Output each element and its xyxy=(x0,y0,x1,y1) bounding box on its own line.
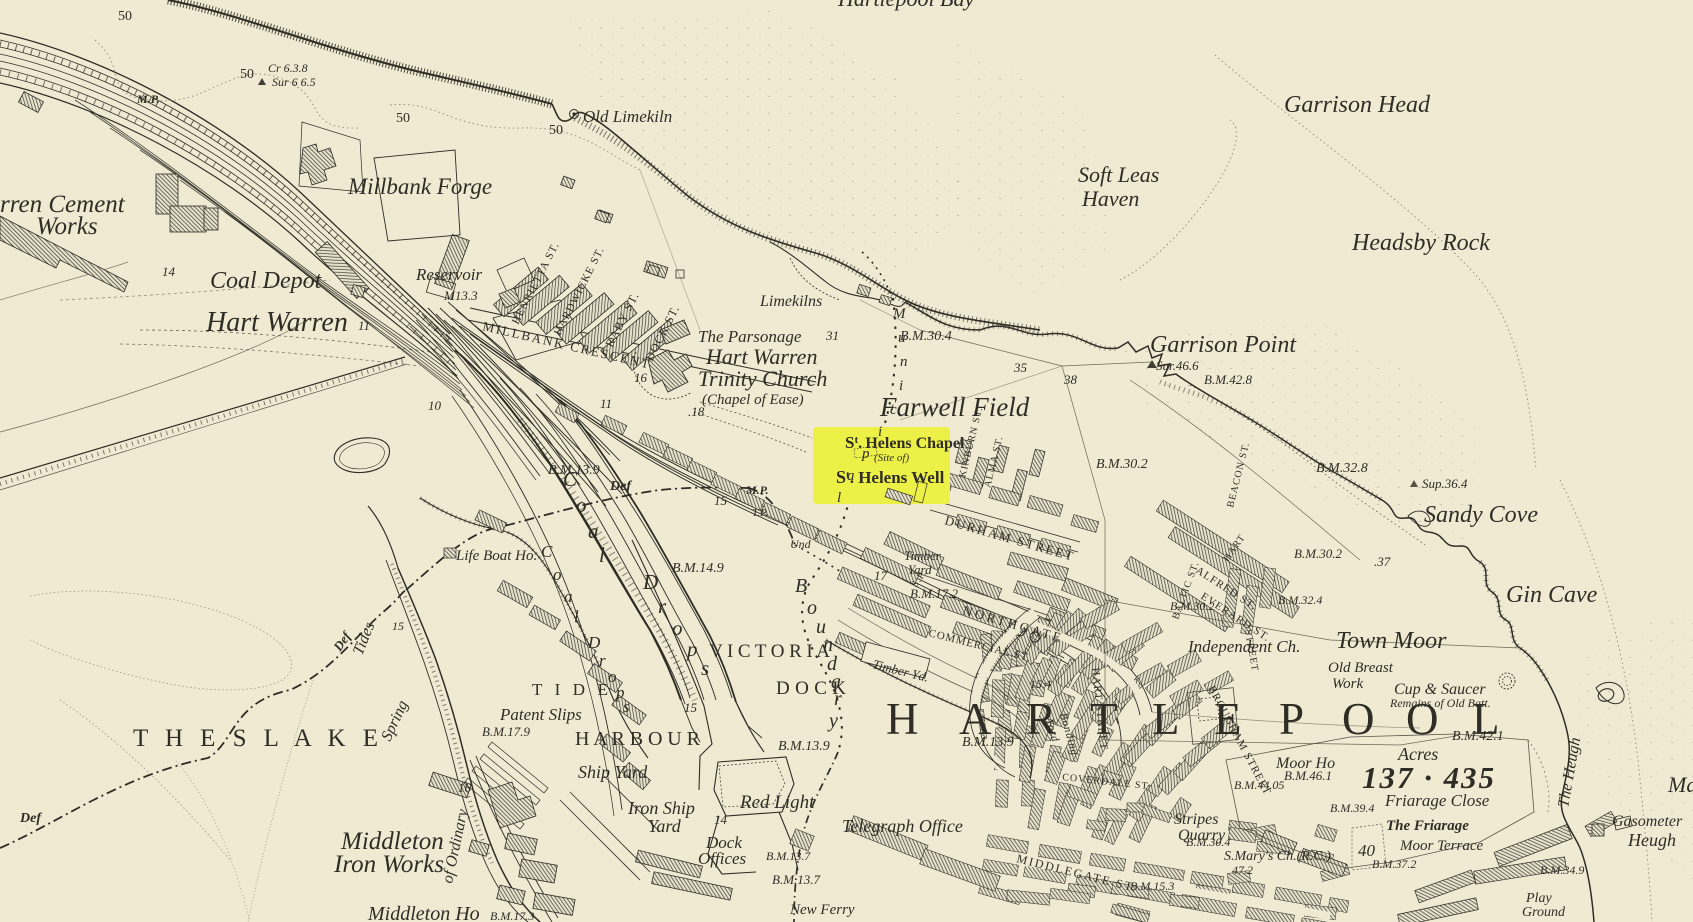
svg-text:Offices: Offices xyxy=(698,849,747,868)
svg-text:M: M xyxy=(892,306,907,322)
svg-text:10: 10 xyxy=(428,398,442,413)
svg-text:16: 16 xyxy=(458,780,472,795)
svg-text:15: 15 xyxy=(684,700,698,715)
svg-text:New Ferry: New Ferry xyxy=(789,902,855,918)
svg-text:Sur.46.6: Sur.46.6 xyxy=(1156,358,1199,373)
svg-text:38: 38 xyxy=(1063,372,1078,387)
svg-text:s: s xyxy=(623,697,630,716)
svg-text:B.M.46.1: B.M.46.1 xyxy=(1284,768,1332,783)
svg-text:Works: Works xyxy=(36,213,98,240)
svg-text:50: 50 xyxy=(240,67,254,82)
svg-text:p: p xyxy=(861,446,870,462)
svg-text:47.2: 47.2 xyxy=(1232,863,1253,877)
svg-text:B.M.13.7: B.M.13.7 xyxy=(772,872,821,887)
svg-text:50: 50 xyxy=(549,123,563,138)
svg-text:u: u xyxy=(898,330,906,346)
svg-text:Town Moor: Town Moor xyxy=(1336,628,1447,654)
svg-text:M13.3: M13.3 xyxy=(443,288,478,303)
svg-text:Soft Leas: Soft Leas xyxy=(1078,162,1159,187)
svg-text:Patent Slips: Patent Slips xyxy=(499,705,582,724)
svg-text:B.M.42.1: B.M.42.1 xyxy=(1452,729,1504,744)
svg-text:T H E S L A K E: T H E S L A K E xyxy=(133,725,378,752)
svg-text:Sandy Cove: Sandy Cove xyxy=(1424,502,1538,528)
svg-text:14: 14 xyxy=(162,264,176,279)
svg-text:i: i xyxy=(878,424,882,440)
svg-text:B.M.34.9: B.M.34.9 xyxy=(1540,863,1584,877)
svg-text:B.M.14.9: B.M.14.9 xyxy=(672,561,724,576)
svg-text:Yard: Yard xyxy=(648,816,682,836)
svg-text:Stripes: Stripes xyxy=(1174,811,1218,828)
svg-text:B.M.13.7: B.M.13.7 xyxy=(766,849,811,863)
svg-text:16: 16 xyxy=(634,370,648,385)
svg-text:O: O xyxy=(1406,694,1439,744)
svg-text:a: a xyxy=(564,587,573,606)
svg-text:Farwell Field: Farwell Field xyxy=(879,392,1030,422)
svg-text:p: p xyxy=(685,637,698,661)
svg-text:Iron Ship: Iron Ship xyxy=(627,798,695,818)
svg-text:B.M.37.2: B.M.37.2 xyxy=(1372,857,1416,871)
svg-text:Sur 6 6.5: Sur 6 6.5 xyxy=(272,75,316,89)
svg-text:B.M.42.8: B.M.42.8 xyxy=(1204,372,1253,387)
svg-text:B.M.32.8: B.M.32.8 xyxy=(1316,461,1368,476)
svg-text:Iron Works: Iron Works xyxy=(333,851,444,878)
svg-text:a: a xyxy=(847,468,855,484)
svg-text:P: P xyxy=(1279,694,1304,744)
svg-text:r: r xyxy=(834,688,842,710)
svg-text:(Chapel of Ease): (Chapel of Ease) xyxy=(702,392,804,408)
svg-text:B.M.32.4: B.M.32.4 xyxy=(1278,593,1322,607)
svg-text:y: y xyxy=(827,710,838,732)
svg-text:Garrison Head: Garrison Head xyxy=(1284,92,1431,118)
svg-text:Garrison Point: Garrison Point xyxy=(1150,332,1297,358)
svg-text:S.Mary's Ch.(R.C.): S.Mary's Ch.(R.C.) xyxy=(1224,849,1331,864)
svg-text:V I C T O R I A: V I C T O R I A xyxy=(709,641,830,662)
svg-text:Millbank Forge: Millbank Forge xyxy=(347,174,492,199)
svg-text:Trinity Church: Trinity Church xyxy=(698,366,827,391)
svg-text:s: s xyxy=(701,656,709,680)
svg-text:Def: Def xyxy=(609,479,632,494)
svg-text:15.4: 15.4 xyxy=(1030,677,1051,691)
svg-text:B.M.30.2: B.M.30.2 xyxy=(1294,546,1343,561)
svg-text:11: 11 xyxy=(600,396,612,411)
svg-text:n: n xyxy=(900,354,908,370)
svg-text:Limekilns: Limekilns xyxy=(759,293,822,310)
svg-text:15: 15 xyxy=(392,619,404,633)
svg-text:H A R B O U R: H A R B O U R xyxy=(575,728,701,750)
svg-text:Und: Und xyxy=(790,537,812,551)
svg-text:Haven: Haven xyxy=(1081,186,1139,211)
svg-text:Life Boat Ho.: Life Boat Ho. xyxy=(455,548,537,564)
svg-text:Moor Terrace: Moor Terrace xyxy=(1399,838,1484,854)
svg-text:B.M.39.4: B.M.39.4 xyxy=(1330,801,1374,815)
svg-text:B.M.30.4: B.M.30.4 xyxy=(900,329,952,344)
svg-text:Headsby Rock: Headsby Rock xyxy=(1351,230,1490,256)
svg-text:T.P.: T.P. xyxy=(752,507,768,519)
svg-text:31: 31 xyxy=(825,328,839,343)
svg-text:Gin Cave: Gin Cave xyxy=(1506,582,1598,608)
svg-text:17: 17 xyxy=(874,568,888,583)
svg-text:B.M.30.2: B.M.30.2 xyxy=(1096,457,1148,472)
svg-text:Def: Def xyxy=(19,811,42,826)
svg-text:Hart Warren: Hart Warren xyxy=(205,307,348,338)
svg-text:Hartlepool Bay: Hartlepool Bay xyxy=(837,0,974,11)
svg-text:35: 35 xyxy=(1013,360,1028,375)
svg-text:Timber: Timber xyxy=(904,548,942,563)
svg-text:D: D xyxy=(642,570,658,594)
svg-text:137 · 435: 137 · 435 xyxy=(1362,760,1494,795)
svg-text:M.P.: M.P. xyxy=(745,483,768,497)
svg-text:Ship Yard: Ship Yard xyxy=(578,762,648,782)
svg-text:Old Breast: Old Breast xyxy=(1328,660,1394,676)
svg-text:Old Limekiln: Old Limekiln xyxy=(583,107,672,126)
svg-text:Ma: Ma xyxy=(1667,772,1693,797)
svg-text:c: c xyxy=(890,402,897,418)
svg-text:a: a xyxy=(588,519,599,543)
svg-text:o: o xyxy=(553,565,562,584)
svg-text:C: C xyxy=(541,542,553,561)
svg-text:Ground: Ground xyxy=(1522,905,1566,920)
svg-text:D: D xyxy=(587,633,601,652)
svg-text:Reservoir: Reservoir xyxy=(415,265,482,284)
svg-text:i: i xyxy=(899,378,903,394)
svg-text:(Site of): (Site of) xyxy=(874,452,909,464)
svg-text:B.M.30.4: B.M.30.4 xyxy=(1186,835,1230,849)
svg-text:o: o xyxy=(576,493,587,517)
svg-text:Gasometer: Gasometer xyxy=(1612,813,1683,830)
svg-text:50: 50 xyxy=(396,111,410,126)
svg-text:Telegraph Office: Telegraph Office xyxy=(842,816,963,836)
svg-text:l: l xyxy=(837,490,841,506)
svg-text:B.M.17.3: B.M.17.3 xyxy=(490,909,534,922)
svg-text:o: o xyxy=(672,616,683,640)
svg-text:Sup.36.4: Sup.36.4 xyxy=(1422,476,1468,491)
svg-text:Middleton Ho: Middleton Ho xyxy=(367,903,480,922)
svg-text:Work: Work xyxy=(1332,676,1363,692)
svg-text:Heugh: Heugh xyxy=(1627,830,1676,850)
svg-text:B.M.17.9: B.M.17.9 xyxy=(482,724,531,739)
svg-text:Play: Play xyxy=(1525,891,1552,906)
svg-text:M.P.: M.P. xyxy=(136,92,159,106)
svg-text:The Friarage: The Friarage xyxy=(1386,818,1469,834)
svg-text:C: C xyxy=(563,467,578,491)
svg-text:r: r xyxy=(599,651,606,670)
svg-text:H: H xyxy=(886,694,919,744)
svg-text:B.M.13.9: B.M.13.9 xyxy=(778,739,830,754)
svg-text:B: B xyxy=(795,575,807,597)
svg-text:11: 11 xyxy=(358,318,370,333)
svg-text:.37: .37 xyxy=(1374,554,1391,569)
svg-text:l: l xyxy=(599,543,605,567)
svg-text:.18: .18 xyxy=(688,404,705,419)
svg-text:L: L xyxy=(1152,694,1180,744)
svg-text:14: 14 xyxy=(714,812,728,827)
svg-text:Cr 6.3.8: Cr 6.3.8 xyxy=(268,61,308,75)
svg-text:B.M.13.9: B.M.13.9 xyxy=(962,735,1014,750)
svg-text:r: r xyxy=(658,594,667,618)
svg-text:50: 50 xyxy=(118,9,132,24)
svg-text:15: 15 xyxy=(714,493,728,508)
svg-text:O: O xyxy=(1342,694,1375,744)
svg-text:Independent Ch.: Independent Ch. xyxy=(1187,637,1300,656)
svg-text:Coal Depot: Coal Depot xyxy=(210,268,323,294)
svg-text:l: l xyxy=(574,607,579,626)
svg-text:Red Light: Red Light xyxy=(739,792,815,813)
